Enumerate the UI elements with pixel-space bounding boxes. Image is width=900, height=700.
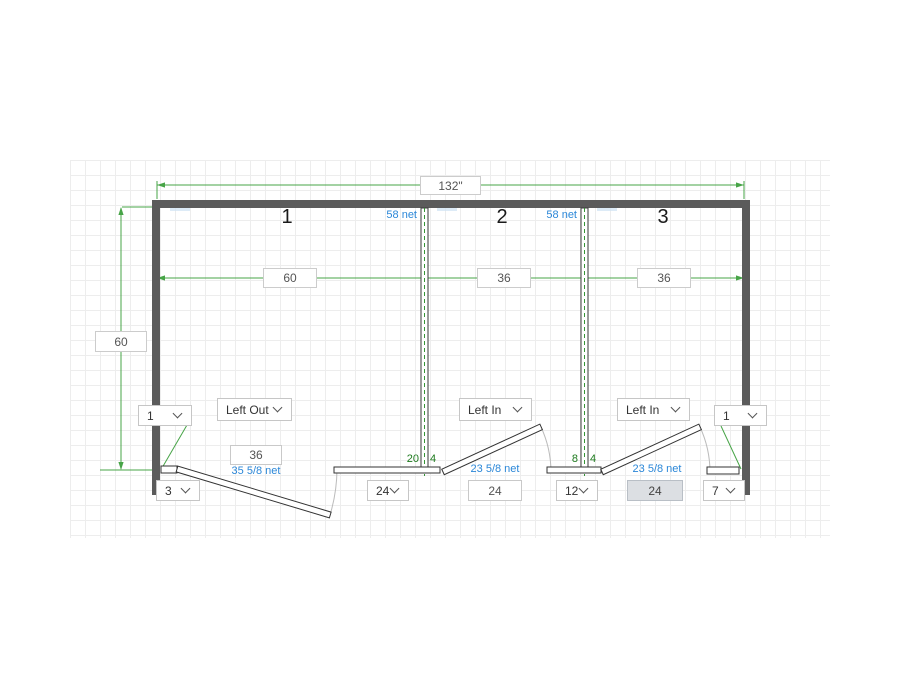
door-3-swing-value: Left In: [626, 404, 659, 416]
chevron-down-icon: [173, 409, 183, 419]
left-corner-select[interactable]: 1: [138, 405, 192, 426]
right-end-filler-select[interactable]: 7: [703, 480, 745, 501]
right-corner-guide-line: [721, 426, 741, 469]
stall-1-width-dim-field[interactable]: 60: [263, 268, 317, 288]
door-2-width-field[interactable]: 24: [468, 480, 522, 501]
partition-2-pilaster-left-label: 8: [562, 454, 578, 465]
door-2-swing-value: Left In: [468, 404, 501, 416]
right-end-filler-value: 7: [712, 485, 719, 497]
panel-2-width-select[interactable]: 12: [556, 480, 598, 501]
door-3-net-label: 23 5/8 net: [617, 464, 697, 475]
partition-2-pilaster-right-label: 4: [590, 454, 596, 465]
panel-1-width-value: 24: [376, 485, 389, 497]
door-1-swing-select[interactable]: Left Out: [217, 398, 292, 421]
left-wall: [152, 200, 160, 495]
front-panel-3[interactable]: [707, 467, 739, 474]
partition-2[interactable]: [581, 208, 588, 476]
chevron-down-icon: [390, 484, 400, 494]
partition-1-pilaster-left-label: 20: [399, 454, 419, 465]
chevron-down-icon: [181, 484, 191, 494]
door-1-width-field[interactable]: 36: [230, 445, 282, 465]
right-wall: [742, 200, 750, 495]
left-corner-value: 1: [147, 410, 154, 422]
overall-width-dim-field[interactable]: 132": [420, 176, 481, 195]
front-panel-2[interactable]: [547, 467, 601, 473]
partition-1[interactable]: [421, 208, 428, 476]
stall-2-width-dim-field[interactable]: 36: [477, 268, 531, 288]
chevron-down-icon: [748, 409, 758, 419]
depth-dim-field[interactable]: 60: [95, 331, 147, 352]
door-2-net-label: 23 5/8 net: [455, 464, 535, 475]
chevron-down-icon: [273, 403, 283, 413]
stall-3-width-dim-field[interactable]: 36: [637, 268, 691, 288]
stall-1-number: 1: [272, 207, 302, 227]
stall-2-number: 2: [487, 207, 517, 227]
door-3-width-field[interactable]: 24: [627, 480, 683, 501]
door-3-swing-select[interactable]: Left In: [617, 398, 690, 421]
stall-3-number: 3: [648, 207, 678, 227]
partition-1-net-label: 58 net: [375, 210, 417, 221]
chevron-down-icon: [671, 403, 681, 413]
door-1-hinge-block[interactable]: [161, 466, 177, 473]
chevron-down-icon: [726, 484, 736, 494]
front-panel-1[interactable]: [334, 467, 440, 473]
door-1-swing-arc: [330, 469, 337, 515]
left-corner-guide-line: [162, 425, 187, 468]
left-end-filler-select[interactable]: 3: [156, 480, 200, 501]
chevron-down-icon: [579, 484, 589, 494]
door-1-swing-value: Left Out: [226, 404, 269, 416]
right-corner-select[interactable]: 1: [714, 405, 767, 426]
right-corner-value: 1: [723, 410, 730, 422]
panel-2-width-value: 12: [565, 485, 578, 497]
panel-1-width-select[interactable]: 24: [367, 480, 409, 501]
door-2-swing-select[interactable]: Left In: [459, 398, 532, 421]
door-1-net-label: 35 5/8 net: [216, 466, 296, 477]
door-2-swing-arc: [541, 427, 551, 472]
left-end-filler-value: 3: [165, 485, 172, 497]
door-3-swing-arc: [700, 427, 710, 472]
partition-2-net-label: 58 net: [535, 210, 577, 221]
chevron-down-icon: [513, 403, 523, 413]
layout-designer-canvas: 132" 60 60 36 36 1 2 3 58 net 58 net 20 …: [0, 0, 900, 700]
partition-1-pilaster-right-label: 4: [430, 454, 436, 465]
